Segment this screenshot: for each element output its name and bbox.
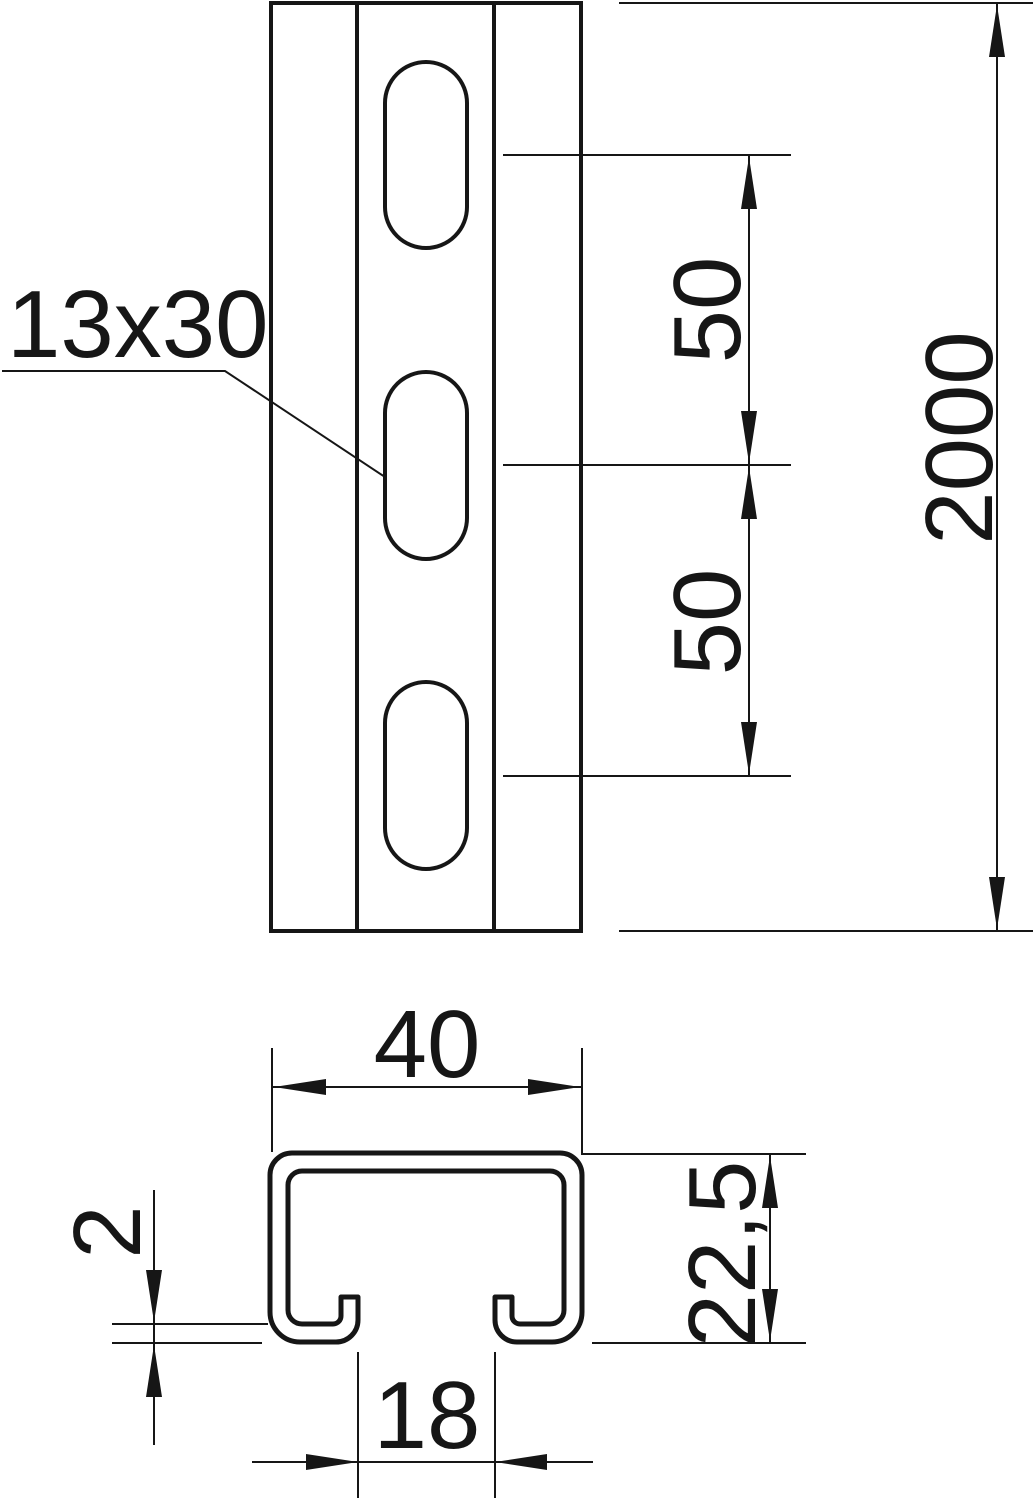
- slot-size-label: 13x30: [7, 271, 269, 378]
- dimension-value: 50: [654, 257, 761, 364]
- arrowhead-down: [741, 411, 757, 463]
- dimension-outer-width: 40: [272, 991, 806, 1154]
- arrowhead-right: [306, 1454, 358, 1470]
- dimension-value: 18: [374, 1362, 481, 1469]
- arrowhead-down: [989, 877, 1005, 929]
- slot-hole-top: [385, 62, 467, 248]
- slot-hole-middle: [385, 372, 467, 559]
- slot-hole-bottom: [385, 682, 467, 869]
- dimension-value: 40: [374, 991, 481, 1098]
- arrowhead-down: [741, 722, 757, 774]
- dimension-total-length: 2000: [619, 3, 1033, 931]
- dimension-slot-opening: 18: [252, 1352, 593, 1498]
- dimension-value: 50: [654, 569, 761, 676]
- rail-body-outline: [271, 3, 581, 931]
- extension-line: [582, 1048, 806, 1154]
- dimension-value: 22,5: [669, 1161, 776, 1348]
- dimension-slot-pitch-upper: 50: [503, 155, 791, 465]
- arrowhead-up: [146, 1345, 162, 1397]
- slot-size-callout: 13x30: [2, 271, 385, 477]
- cross-section-view: [270, 1153, 582, 1342]
- arrowhead-left: [495, 1454, 547, 1470]
- dimension-material-thickness: 2: [54, 1190, 268, 1445]
- arrowhead-up: [741, 467, 757, 519]
- dimension-value: 2000: [906, 331, 1013, 545]
- dimension-slot-pitch-lower: 50: [503, 465, 791, 776]
- arrowhead-left: [274, 1079, 326, 1095]
- technical-drawing-page: 13x30 50 50 2000 40: [0, 0, 1035, 1500]
- dimension-value: 2: [54, 1205, 161, 1258]
- arrowhead-up: [989, 5, 1005, 57]
- arrowhead-right: [528, 1079, 580, 1095]
- arrowhead-down: [146, 1270, 162, 1322]
- front-view: [271, 3, 581, 931]
- leader-line: [2, 371, 385, 477]
- technical-drawing-svg: 13x30 50 50 2000 40: [0, 0, 1035, 1500]
- arrowhead-up: [741, 157, 757, 209]
- dimension-profile-height: 22,5: [592, 1154, 806, 1347]
- channel-profile-outline: [270, 1153, 582, 1342]
